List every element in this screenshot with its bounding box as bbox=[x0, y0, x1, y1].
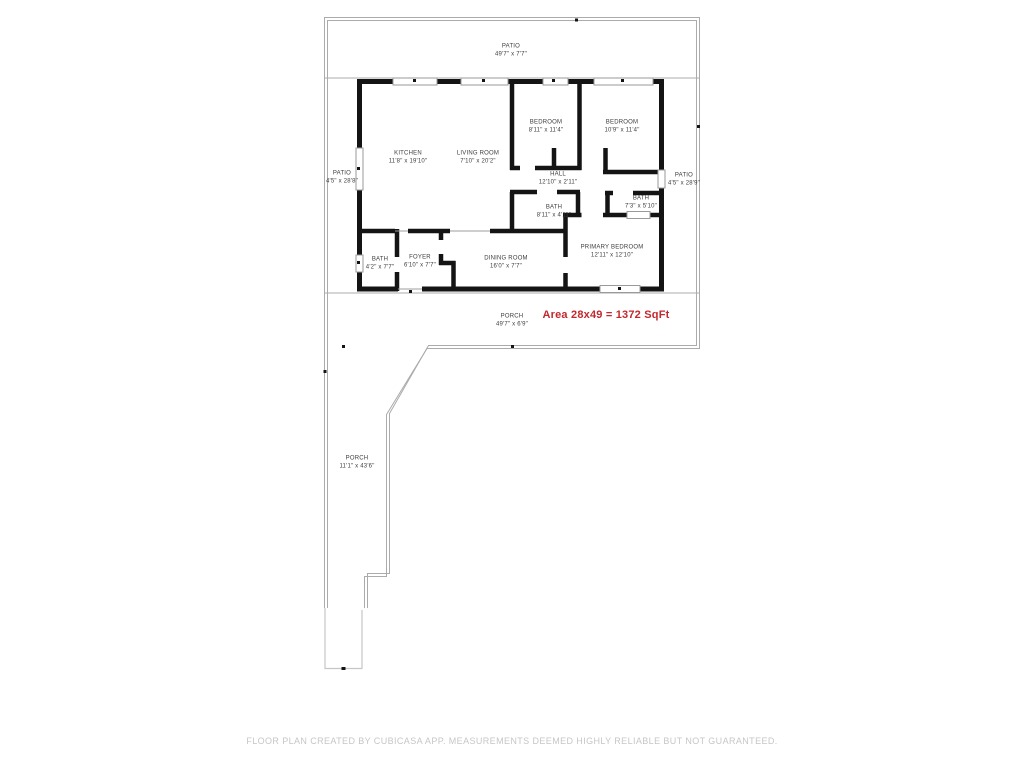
room-dims: 12'11" x 12'10" bbox=[581, 252, 644, 260]
room-dims: 4'5" x 28'8" bbox=[326, 178, 358, 186]
floorplan-drawing bbox=[0, 0, 1024, 768]
floorplan-page: PATIO 49'7" x 7'7" KITCHEN 11'8" x 19'10… bbox=[0, 0, 1024, 768]
room-dims: 4'5" x 28'9" bbox=[668, 180, 700, 188]
room-name: PATIO bbox=[668, 173, 700, 181]
room-name: KITCHEN bbox=[389, 151, 428, 159]
room-dims: 49'7" x 7'7" bbox=[495, 51, 527, 59]
room-name: BATH bbox=[625, 196, 657, 204]
room-dims: 4'2" x 7'7" bbox=[366, 264, 394, 272]
steps-outline bbox=[325, 608, 362, 669]
room-name: BEDROOM bbox=[604, 120, 639, 128]
room-name: PORCH bbox=[339, 456, 374, 464]
room-name: DINING ROOM bbox=[484, 256, 528, 264]
room-name: LIVING ROOM bbox=[457, 151, 499, 159]
room-label-foyer: FOYER 6'10" x 7'7" bbox=[404, 255, 436, 270]
room-label-primary-bedroom: PRIMARY BEDROOM 12'11" x 12'10" bbox=[581, 245, 644, 260]
room-name: HALL bbox=[539, 172, 578, 180]
room-name: PATIO bbox=[326, 171, 358, 179]
room-label-living-room: LIVING ROOM 7'10" x 20'2" bbox=[457, 151, 499, 166]
room-name: FOYER bbox=[404, 255, 436, 263]
footer-disclaimer: FLOOR PLAN CREATED BY CUBICASA APP. MEAS… bbox=[0, 736, 1024, 746]
room-label-porch-top: PORCH 49'7" x 6'9" bbox=[496, 314, 528, 329]
room-dims: 10'9" x 11'4" bbox=[604, 127, 639, 135]
room-dims: 7'3" x 5'10" bbox=[625, 203, 657, 211]
room-name: BATH bbox=[537, 205, 572, 213]
room-label-bath-middle: BATH 8'11" x 4'11" bbox=[537, 205, 572, 220]
room-label-bedroom-left: BEDROOM 8'11" x 11'4" bbox=[529, 120, 564, 135]
room-label-dining-room: DINING ROOM 16'0" x 7'7" bbox=[484, 256, 528, 271]
room-dims: 6'10" x 7'7" bbox=[404, 262, 436, 270]
room-dims: 7'10" x 20'2" bbox=[457, 158, 499, 166]
room-label-porch-bottom: PORCH 11'1" x 43'6" bbox=[339, 456, 374, 471]
room-dims: 11'8" x 19'10" bbox=[389, 158, 428, 166]
room-label-kitchen: KITCHEN 11'8" x 19'10" bbox=[389, 151, 428, 166]
room-name: BEDROOM bbox=[529, 120, 564, 128]
room-label-patio-top: PATIO 49'7" x 7'7" bbox=[495, 44, 527, 59]
room-label-patio-right: PATIO 4'5" x 28'9" bbox=[668, 173, 700, 188]
room-label-bath-right: BATH 7'3" x 5'10" bbox=[625, 196, 657, 211]
room-dims: 11'1" x 43'6" bbox=[339, 463, 374, 471]
area-annotation: Area 28x49 = 1372 SqFt bbox=[542, 309, 669, 321]
room-dims: 8'11" x 11'4" bbox=[529, 127, 564, 135]
room-dims: 12'10" x 2'11" bbox=[539, 179, 578, 187]
room-dims: 16'0" x 7'7" bbox=[484, 263, 528, 271]
room-name: PRIMARY BEDROOM bbox=[581, 245, 644, 253]
room-dims: 8'11" x 4'11" bbox=[537, 212, 572, 220]
room-label-hall: HALL 12'10" x 2'11" bbox=[539, 172, 578, 187]
room-name: BATH bbox=[366, 257, 394, 265]
room-label-patio-left: PATIO 4'5" x 28'8" bbox=[326, 171, 358, 186]
room-name: PATIO bbox=[495, 44, 527, 52]
room-label-bath-left: BATH 4'2" x 7'7" bbox=[366, 257, 394, 272]
room-name: PORCH bbox=[496, 314, 528, 322]
room-dims: 49'7" x 6'9" bbox=[496, 321, 528, 329]
room-label-bedroom-right: BEDROOM 10'9" x 11'4" bbox=[604, 120, 639, 135]
